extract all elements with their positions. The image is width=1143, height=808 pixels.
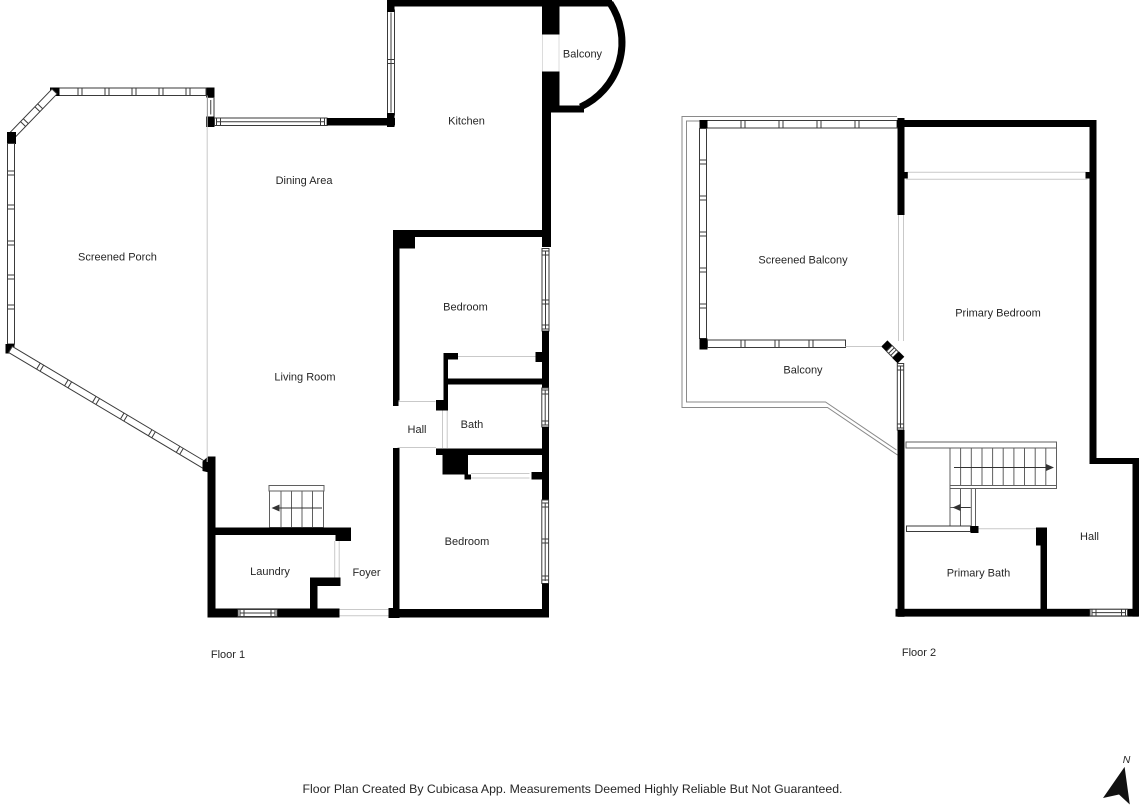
svg-text:Bedroom: Bedroom xyxy=(445,536,490,548)
svg-text:Bedroom: Bedroom xyxy=(443,302,488,314)
svg-text:Primary Bedroom: Primary Bedroom xyxy=(955,308,1041,320)
svg-text:Screened Porch: Screened Porch xyxy=(78,252,157,264)
svg-text:Hall: Hall xyxy=(1080,531,1099,543)
svg-text:Primary Bath: Primary Bath xyxy=(947,568,1011,580)
svg-text:Floor 2: Floor 2 xyxy=(902,647,936,659)
svg-text:Screened Balcony: Screened Balcony xyxy=(758,255,848,267)
svg-text:Balcony: Balcony xyxy=(563,49,603,61)
svg-text:Living Room: Living Room xyxy=(274,372,335,384)
svg-text:N: N xyxy=(1123,754,1131,766)
svg-text:Floor 1: Floor 1 xyxy=(211,649,245,661)
svg-text:Dining Area: Dining Area xyxy=(276,175,334,187)
svg-text:Foyer: Foyer xyxy=(352,567,380,579)
svg-text:Laundry: Laundry xyxy=(250,566,290,578)
svg-text:Floor Plan Created By Cubicasa: Floor Plan Created By Cubicasa App. Meas… xyxy=(303,782,843,796)
svg-text:Kitchen: Kitchen xyxy=(448,116,485,128)
svg-text:Hall: Hall xyxy=(408,424,427,436)
svg-text:Balcony: Balcony xyxy=(783,365,823,377)
svg-text:Bath: Bath xyxy=(461,419,484,431)
